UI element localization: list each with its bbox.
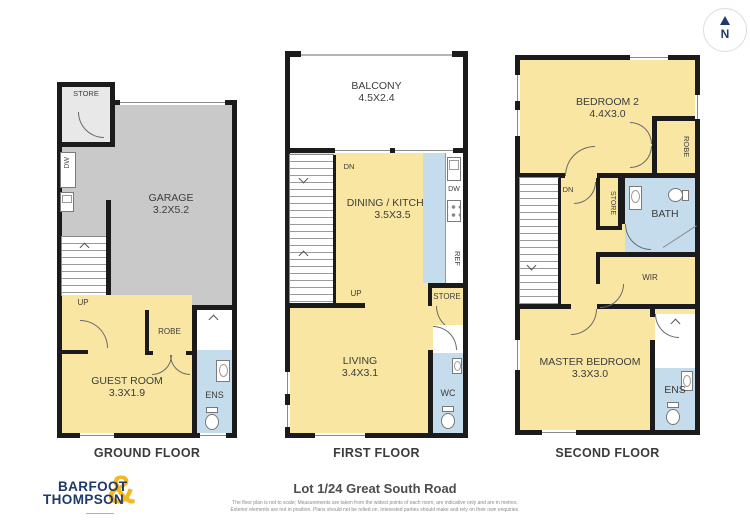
first-stairs [290, 155, 333, 305]
wc-label: WC [433, 388, 463, 399]
first-window-left-1 [285, 372, 290, 394]
ens-vanity-icon [216, 360, 230, 382]
ground-floor-caption: GROUND FLOOR [57, 446, 237, 460]
ground-window-1 [80, 433, 114, 438]
ground-ens-label: ENS [197, 390, 232, 401]
first-stair-bottom-wall [285, 303, 365, 308]
robe2-wall-left [652, 116, 657, 173]
guest-dims: 3.3X1.9 [64, 387, 190, 399]
disclaimer: The floor plan is not to scale; Measurem… [125, 500, 625, 513]
stair-wall [106, 200, 111, 310]
guest-name: GUEST ROOM [64, 375, 190, 387]
first-window-left-2 [285, 405, 290, 427]
balcony-name: BALCONY [290, 80, 463, 92]
balcony-cap-right [452, 51, 468, 57]
garage-door [120, 100, 225, 105]
garage-name: GARAGE [110, 192, 232, 204]
compass-north-label: N [704, 27, 746, 41]
master-wall-a [515, 304, 571, 309]
first-up-label: UP [342, 289, 370, 298]
second-window-right [695, 95, 700, 119]
first-floor-caption: FIRST FLOOR [285, 446, 468, 460]
compass: N [703, 8, 747, 52]
ground-store-label: STORE [62, 90, 110, 99]
bath-wall-bottom [596, 252, 700, 257]
bedroom2-name: BEDROOM 2 [520, 96, 695, 108]
second-floor-caption: SECOND FLOOR [515, 446, 700, 460]
wc-basin-icon [452, 358, 462, 374]
bath-vanity-icon [629, 186, 642, 210]
first-store-label: STORE [430, 292, 464, 301]
ground-window-2 [200, 433, 226, 438]
first-stair-wall [333, 155, 336, 305]
bath-label: BATH [640, 208, 690, 220]
north-arrow-icon [720, 16, 730, 25]
plan-title: Lot 1/24 Great South Road [175, 481, 575, 496]
balcony-slider-1 [335, 148, 390, 153]
ens2-label: ENS [655, 384, 695, 396]
balcony-dims: 4.5X2.4 [290, 92, 463, 104]
master-bedroom-label: MASTER BEDROOM 3.3X3.0 [520, 356, 660, 381]
first-dw-label: DW [445, 186, 463, 194]
master-wall-b [597, 304, 700, 309]
wc-toilet-icon [441, 406, 455, 429]
disclaimer-line2: Exterior elements are not in position. P… [125, 507, 625, 514]
living-dims: 3.4X3.1 [290, 367, 430, 379]
living-name: LIVING [290, 355, 430, 367]
bath-toilet-icon [668, 188, 688, 202]
ens2-toilet-icon [666, 402, 680, 425]
balcony-wall-right [463, 53, 468, 150]
wir-wall-left [596, 252, 600, 284]
kitchen-sink-icon [447, 157, 461, 181]
ground-robe-label: ROBE [147, 327, 192, 336]
balcony-cap-left [285, 51, 301, 57]
second-stairs [520, 178, 558, 304]
store2-wall-left [596, 178, 600, 228]
second-stair-wall [558, 178, 561, 304]
store2-wall-right [618, 178, 622, 228]
ground-dw-label: DW [64, 157, 72, 169]
second-window-bottom [542, 430, 576, 435]
balcony-railing [290, 54, 463, 56]
ground-toilet-icon [205, 407, 219, 430]
brand-tagline-line [86, 513, 114, 514]
robe2-label: ROBE [676, 124, 690, 170]
first-store-wall-top [428, 283, 468, 288]
fridge-label: REF [447, 237, 461, 279]
cooktop-icon [447, 200, 461, 222]
hall-wall [62, 350, 88, 354]
kitchen-bench [423, 153, 445, 283]
store2-label: STORE [602, 181, 616, 225]
ground-up-label: UP [66, 298, 100, 307]
garage-label: GARAGE 3.2X5.2 [110, 192, 232, 217]
laundry-tub-icon [60, 192, 74, 212]
wir-label: WIR [625, 273, 675, 282]
living-label: LIVING 3.4X3.1 [290, 355, 430, 380]
master-dims: 3.3X3.0 [520, 368, 660, 380]
first-dn-label: DN [337, 163, 361, 172]
master-name: MASTER BEDROOM [520, 356, 660, 368]
floorplan-page: N STORE DW GARAGE 3.2X5.2 UP [0, 0, 750, 530]
dishwasher-icon: DW [60, 152, 76, 188]
first-window-bottom [315, 433, 365, 438]
brand-line2: THOMPSON [43, 492, 124, 507]
guest-room-label: GUEST ROOM 3.3X1.9 [64, 375, 190, 400]
balcony-label: BALCONY 4.5X2.4 [290, 80, 463, 105]
second-window-top [630, 55, 668, 60]
garage-dims: 3.2X5.2 [110, 204, 232, 216]
store2-wall-bottom [596, 226, 622, 230]
robe2-wall-top [652, 116, 695, 121]
